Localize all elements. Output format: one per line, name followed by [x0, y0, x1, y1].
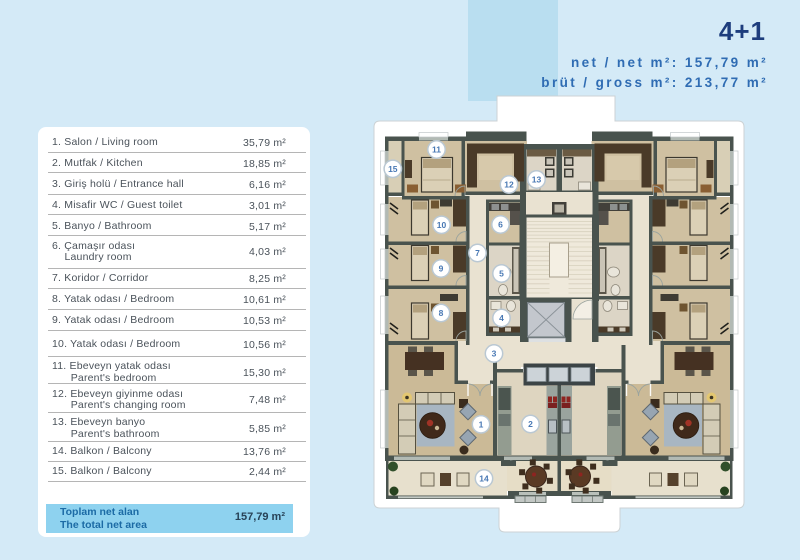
svg-text:7: 7 — [475, 248, 480, 258]
svg-text:5: 5 — [499, 269, 504, 279]
svg-text:8: 8 — [439, 308, 444, 318]
svg-text:4: 4 — [499, 313, 504, 323]
svg-text:11: 11 — [432, 145, 441, 155]
svg-text:14: 14 — [479, 474, 489, 484]
svg-text:6: 6 — [498, 220, 503, 230]
svg-text:1: 1 — [479, 420, 484, 430]
svg-text:13: 13 — [532, 175, 542, 185]
svg-text:10: 10 — [437, 220, 447, 230]
svg-text:2: 2 — [528, 419, 533, 429]
svg-text:9: 9 — [439, 264, 444, 274]
svg-text:3: 3 — [492, 349, 497, 359]
svg-text:15: 15 — [388, 164, 398, 174]
svg-text:12: 12 — [504, 180, 514, 190]
